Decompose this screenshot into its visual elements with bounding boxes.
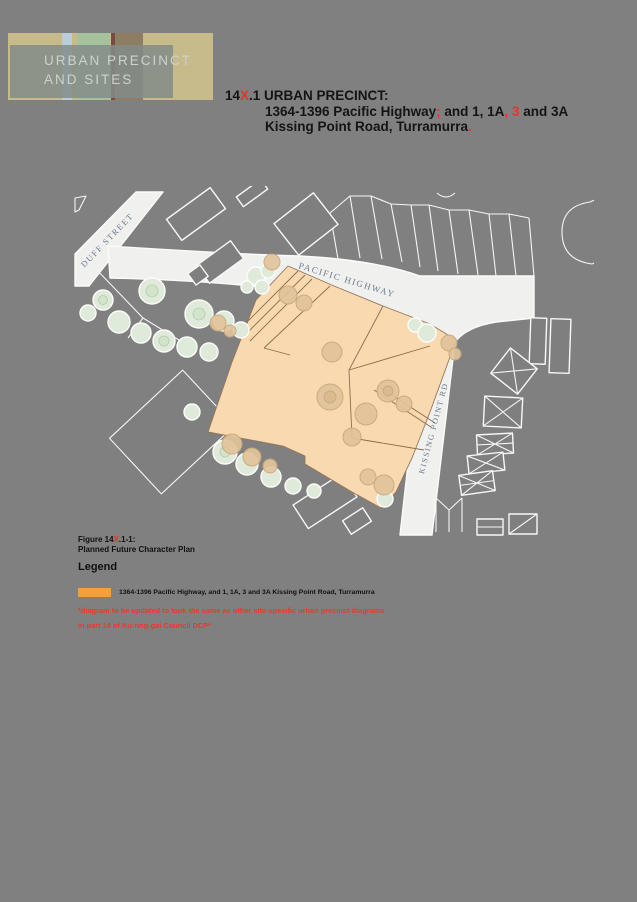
section-title: 14X.1 URBAN PRECINCT: 1364-1396 Pacific … [225,88,568,135]
document-page: URBAN PRECINCT AND SITES 14X.1 URBAN PRE… [0,0,637,902]
site-map: DUFF STREET PACIFIC HIGHWAY KISSING POIN… [70,186,594,538]
legend-heading: Legend [78,561,117,573]
section-title-line1: 14X.1 URBAN PRECINCT: [225,88,568,104]
curved-parcel-outline [562,199,594,264]
legend-item-label: 1364-1396 Pacific Highway, and 1, 1A, 3 … [119,589,375,596]
legend-item: 1364-1396 Pacific Highway, and 1, 1A, 3 … [78,588,375,597]
header-banner: URBAN PRECINCT AND SITES [8,33,213,100]
banner-title-line2: AND SITES [44,70,192,89]
legend-swatch [78,588,111,597]
revision-note-line1: *diagram to be updated to look the same … [78,603,384,618]
figure-caption: Figure 14X.1-1: Planned Future Character… [78,535,195,555]
banner-overlay: URBAN PRECINCT AND SITES [10,45,173,98]
section-title-line3: Kissing Point Road, Turramurra. [265,119,568,135]
banner-title: URBAN PRECINCT AND SITES [44,51,192,89]
section-title-line2: 1364-1396 Pacific Highway; and 1, 1A, 3 … [265,104,568,120]
revision-note-line2: in part 14 of Ku-ring-gai Council DCP* [78,618,384,633]
revision-note: *diagram to be updated to look the same … [78,603,384,633]
banner-title-line1: URBAN PRECINCT [44,51,192,70]
figure-caption-title: Planned Future Character Plan [78,545,195,555]
figure-caption-number: Figure 14X.1-1: [78,535,195,545]
